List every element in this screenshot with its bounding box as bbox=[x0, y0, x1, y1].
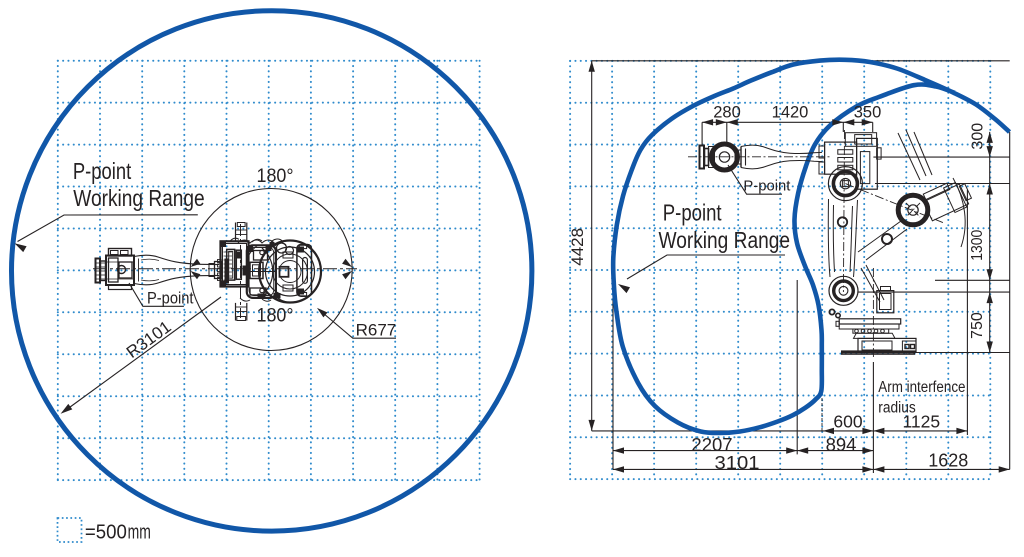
svg-text:P-point: P-point bbox=[147, 290, 194, 308]
svg-text:mm: mm bbox=[128, 521, 151, 543]
svg-text:P-point: P-point bbox=[73, 158, 132, 184]
svg-text:180°: 180° bbox=[257, 166, 294, 187]
svg-text:894: 894 bbox=[826, 434, 857, 455]
svg-text:3101: 3101 bbox=[715, 452, 760, 473]
svg-text:Arm interfence: Arm interfence bbox=[878, 379, 965, 396]
svg-text:280: 280 bbox=[713, 104, 741, 122]
svg-text:350: 350 bbox=[854, 104, 882, 122]
svg-text:4428: 4428 bbox=[568, 228, 587, 266]
svg-text:300: 300 bbox=[969, 123, 986, 150]
svg-text:P-point: P-point bbox=[663, 200, 722, 226]
svg-text:1300: 1300 bbox=[969, 230, 986, 261]
svg-text:Working Range: Working Range bbox=[73, 185, 204, 211]
svg-text:600: 600 bbox=[833, 412, 862, 432]
svg-text:1420: 1420 bbox=[772, 104, 809, 122]
svg-text:P-point: P-point bbox=[743, 178, 791, 195]
svg-text:R677: R677 bbox=[356, 321, 397, 340]
svg-text:radius: radius bbox=[878, 400, 916, 417]
svg-text:Working Range: Working Range bbox=[659, 227, 791, 253]
svg-text:750: 750 bbox=[969, 312, 986, 339]
svg-text:1628: 1628 bbox=[928, 451, 968, 471]
svg-text:180°: 180° bbox=[257, 306, 294, 327]
svg-text:=500: =500 bbox=[85, 521, 127, 543]
